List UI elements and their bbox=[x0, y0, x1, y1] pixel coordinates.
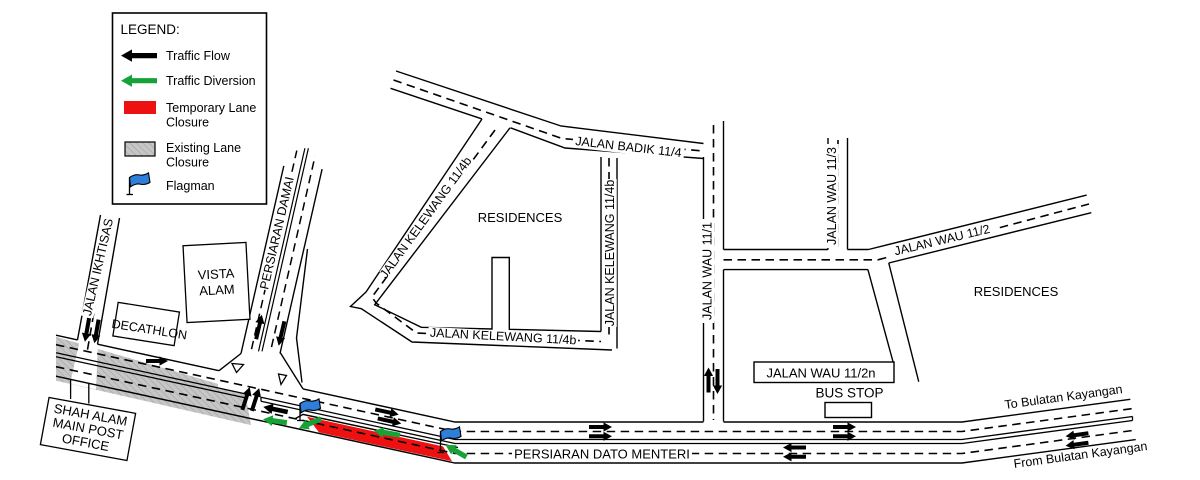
svg-text:VISTA: VISTA bbox=[197, 266, 235, 283]
svg-text:Traffic Diversion: Traffic Diversion bbox=[166, 74, 256, 88]
svg-text:JALAN WAU 11/3: JALAN WAU 11/3 bbox=[825, 147, 839, 245]
svg-text:ALAM: ALAM bbox=[199, 282, 235, 299]
svg-text:RESIDENCES: RESIDENCES bbox=[974, 284, 1059, 299]
svg-text:Temporary Lane: Temporary Lane bbox=[166, 101, 256, 115]
svg-text:PERSIARAN DATO MENTERI: PERSIARAN DATO MENTERI bbox=[514, 447, 690, 462]
svg-text:Existing Lane: Existing Lane bbox=[166, 141, 241, 155]
svg-text:Closure: Closure bbox=[166, 156, 209, 170]
svg-text:BUS STOP: BUS STOP bbox=[815, 386, 883, 401]
svg-text:JALAN WAU 11/2n: JALAN WAU 11/2n bbox=[766, 366, 875, 381]
svg-text:RESIDENCES: RESIDENCES bbox=[478, 210, 563, 225]
svg-text:LEGEND:: LEGEND: bbox=[121, 22, 180, 37]
svg-text:JALAN WAU 11/1: JALAN WAU 11/1 bbox=[701, 222, 715, 320]
svg-text:Closure: Closure bbox=[166, 116, 209, 130]
svg-text:Flagman: Flagman bbox=[166, 179, 215, 193]
svg-text:Traffic Flow: Traffic Flow bbox=[166, 49, 231, 63]
svg-text:JALAN KELEWANG 11/4b: JALAN KELEWANG 11/4b bbox=[603, 180, 617, 327]
